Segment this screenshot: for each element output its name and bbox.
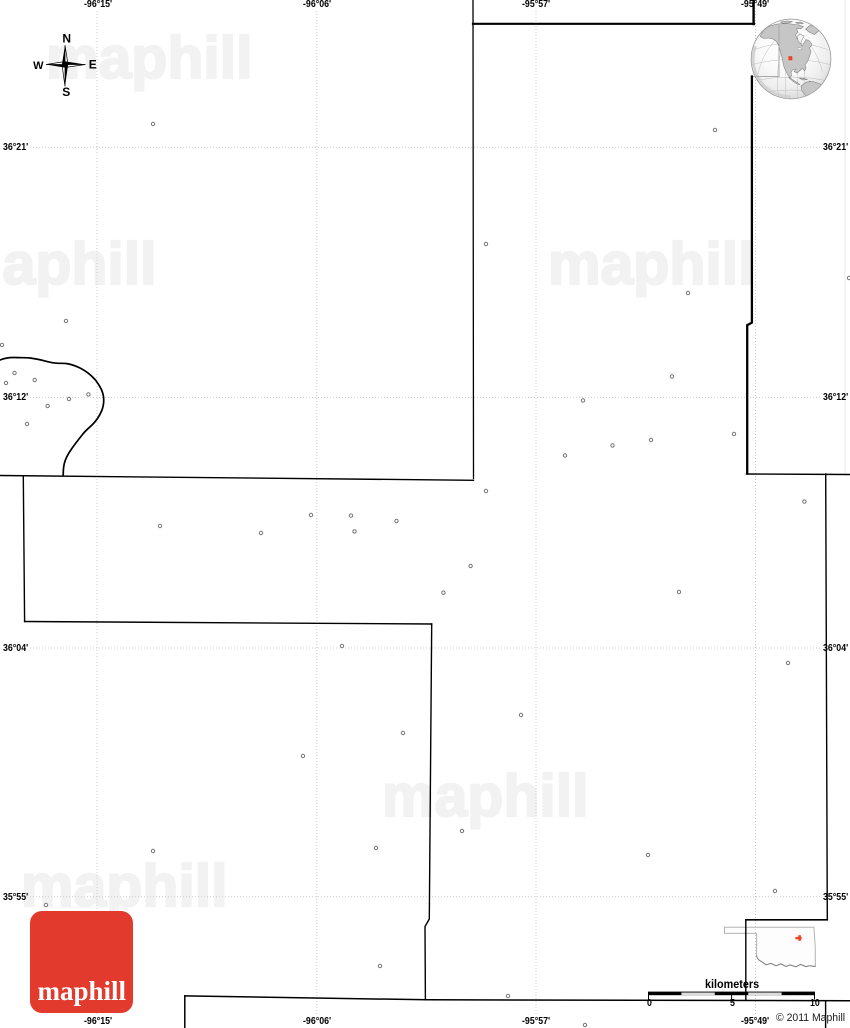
svg-text:S: S bbox=[62, 85, 70, 99]
svg-text:N: N bbox=[62, 31, 71, 45]
svg-text:W: W bbox=[33, 60, 44, 72]
svg-text:E: E bbox=[89, 58, 97, 72]
